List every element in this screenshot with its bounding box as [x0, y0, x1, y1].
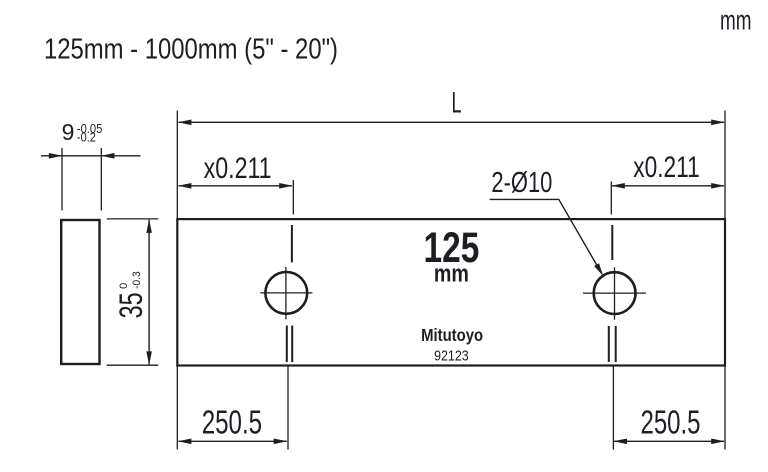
svg-text:-0.2: -0.2: [77, 130, 96, 145]
svg-text:0: 0: [118, 283, 130, 289]
svg-text:250.5: 250.5: [202, 404, 262, 441]
svg-text:9: 9: [62, 119, 75, 145]
svg-text:L: L: [452, 87, 462, 120]
svg-text:92123: 92123: [434, 348, 469, 365]
svg-text:x0.211: x0.211: [204, 152, 272, 185]
svg-text:250.5: 250.5: [641, 404, 701, 441]
svg-text:mm: mm: [720, 5, 752, 36]
svg-text:125mm - 1000mm (5" - 20"): 125mm - 1000mm (5" - 20"): [44, 34, 338, 66]
svg-text:Mitutoyo: Mitutoyo: [421, 325, 483, 345]
svg-text:2-Ø10: 2-Ø10: [491, 167, 552, 199]
svg-text:mm: mm: [434, 261, 469, 288]
svg-text:-0.3: -0.3: [131, 271, 143, 289]
svg-text:35: 35: [113, 292, 149, 318]
svg-text:x0.211: x0.211: [633, 151, 699, 184]
